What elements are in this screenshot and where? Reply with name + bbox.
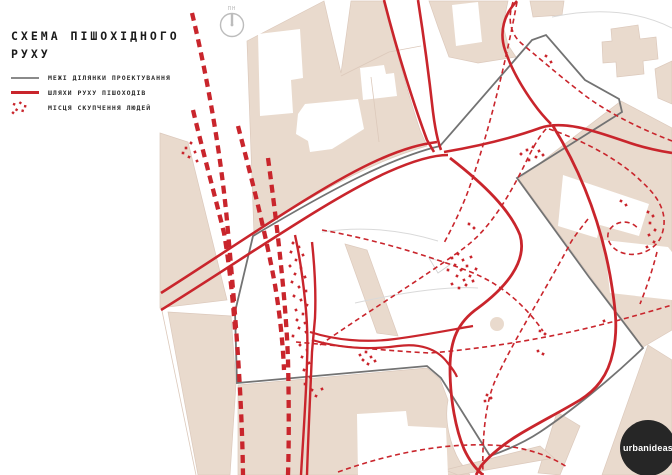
legend: МЕЖІ ДІЛЯНКИ ПРОЕКТУВАННЯ ШЛЯХИ РУХУ ПІШ…	[11, 70, 171, 115]
legend-item-site-boundary: МЕЖІ ДІЛЯНКИ ПРОЕКТУВАННЯ	[11, 70, 171, 85]
compass-label: ПН	[228, 6, 237, 12]
legend-item-pedestrian-routes: ШЛЯХИ РУХУ ПІШОХОДІВ	[11, 85, 171, 100]
legend-item-crowd-spots: МІСЦЯ СКУПЧЕННЯ ЛЮДЕЙ	[11, 100, 171, 115]
logo-text: urbanideas	[623, 443, 672, 453]
boundary-line-swatch-icon	[11, 77, 39, 79]
page-title: СХЕМА ПІШОХІДНОГО РУХУ	[11, 27, 180, 63]
route-line-swatch-icon	[11, 91, 39, 94]
compass: ПН	[221, 6, 244, 37]
title-line-1: СХЕМА ПІШОХІДНОГО	[11, 27, 180, 45]
legend-label: МІСЦЯ СКУПЧЕННЯ ЛЮДЕЙ	[48, 104, 151, 112]
north-needle-icon	[221, 14, 244, 37]
city-blocks-layer	[160, 1, 672, 475]
title-line-2: РУХУ	[11, 45, 180, 63]
legend-label: ШЛЯХИ РУХУ ПІШОХОДІВ	[48, 89, 146, 97]
pedestrian-scheme-poster: ПН СХЕМА ПІШОХІДНОГО РУХУ МЕЖІ ДІЛЯНКИ П…	[0, 0, 672, 475]
crowd-dots-swatch-icon	[11, 101, 39, 115]
legend-label: МЕЖІ ДІЛЯНКИ ПРОЕКТУВАННЯ	[48, 74, 171, 82]
urbanideas-logo: urbanideas	[620, 420, 672, 475]
